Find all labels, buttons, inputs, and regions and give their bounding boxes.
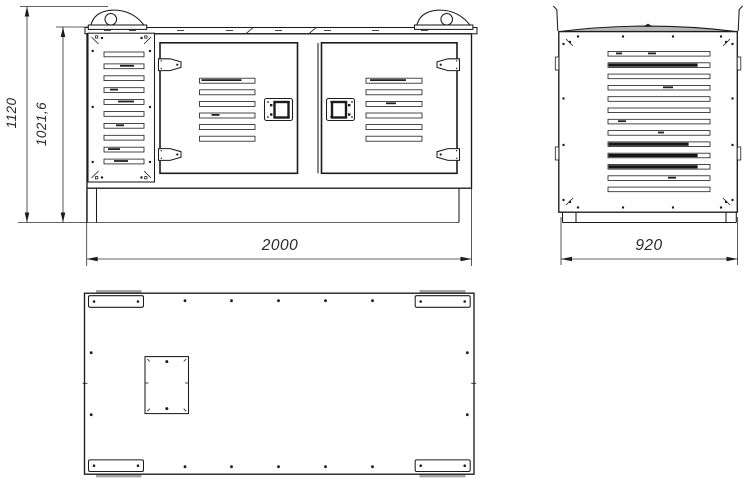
louver-slat-mark — [648, 53, 656, 55]
foot-plate — [415, 460, 470, 472]
door-left-handle — [265, 99, 293, 121]
dimension-label-width-front: 2000 — [261, 237, 298, 254]
lifting-eye-base — [88, 25, 146, 29]
screw-dot — [569, 41, 571, 43]
screw-dot — [720, 35, 722, 37]
screw-dot — [92, 161, 94, 163]
louver-slat-fill — [609, 64, 698, 67]
screw-dot — [90, 413, 93, 416]
foot-plate-hole — [463, 300, 466, 303]
dimension-label-height-body: 1021,6 — [34, 102, 49, 146]
screw-dot — [731, 199, 733, 201]
screw-dot — [184, 465, 187, 468]
louver-slat-mark — [114, 160, 128, 162]
foot-plate-hole — [463, 464, 466, 467]
screw-dot — [562, 97, 564, 99]
arrowhead — [87, 257, 98, 262]
screw-dot — [90, 351, 93, 354]
front-door-left — [159, 43, 298, 174]
lifting-eye-left — [88, 10, 146, 29]
arrowhead — [461, 257, 472, 262]
handle-screw — [267, 116, 269, 118]
screw-dot — [324, 299, 327, 302]
foot-plate-hole — [419, 464, 422, 467]
dimension-label-width-side: 920 — [635, 237, 662, 254]
louver-slat-mark — [668, 177, 676, 179]
screw-dot — [562, 144, 564, 146]
hinge-screw — [456, 68, 457, 69]
foot-plate — [89, 460, 144, 472]
louver-panel-outline — [88, 33, 155, 182]
door-right-handle — [327, 99, 355, 121]
screw-dot — [149, 50, 151, 52]
side-view: 920 — [553, 6, 742, 265]
foot-plate-hole — [419, 300, 422, 303]
lifting-eye-base — [415, 25, 473, 29]
foot-plate-hole — [137, 464, 140, 467]
screw-dot — [725, 41, 727, 43]
louver-slat-mark — [618, 120, 626, 122]
arrowhead — [25, 213, 30, 223]
roof-peak-mark — [643, 24, 653, 27]
screw-dot — [731, 97, 733, 99]
arrowhead — [727, 257, 738, 262]
screw-dot — [622, 35, 624, 37]
screw-dot — [371, 299, 374, 302]
screw-dot — [101, 37, 103, 39]
arrowhead — [61, 27, 66, 37]
side-tab — [737, 57, 741, 70]
screw-dot — [92, 50, 94, 52]
louver-slat-mark — [120, 65, 134, 67]
screw-dot — [622, 206, 624, 208]
handle-screw — [351, 116, 353, 118]
side-base — [563, 212, 737, 222]
base-plate-outline — [85, 293, 475, 474]
louver-slat-mark — [202, 79, 242, 81]
screw-dot — [466, 413, 469, 416]
handle-tab — [270, 104, 272, 106]
screw-dot — [140, 176, 142, 178]
handle-tab — [348, 104, 350, 106]
screw-dot — [569, 201, 571, 203]
screw-dot — [277, 299, 280, 302]
foot-plate-hole — [137, 300, 140, 303]
handle-tab — [348, 113, 350, 115]
arrowhead — [25, 7, 30, 17]
screw-dot — [466, 351, 469, 354]
hinge-screw — [456, 158, 457, 159]
screw-dot — [92, 106, 94, 108]
hinge-pin — [176, 153, 178, 155]
hinge-screw — [161, 60, 162, 61]
foot-plate-hole — [93, 300, 96, 303]
screw-dot — [672, 35, 674, 37]
hinge-screw — [161, 68, 162, 69]
hinge-screw — [161, 150, 162, 151]
screw-dot — [725, 201, 727, 203]
service-opening — [145, 357, 189, 414]
dimension-label-height-overall: 1120 — [4, 97, 19, 128]
front-louver-panel — [88, 33, 155, 182]
drawing-svg: 1120 1021,6 2000 — [0, 0, 744, 484]
hinge-screw — [456, 60, 457, 61]
louver-slat-fill — [609, 154, 698, 157]
front-door-right — [322, 43, 460, 174]
screw-dot — [720, 206, 722, 208]
hinge-pin — [176, 64, 178, 66]
louver-slat-mark — [110, 89, 118, 91]
screw-dot — [577, 35, 579, 37]
screw-dot — [731, 43, 733, 45]
foot-plate — [415, 296, 470, 308]
louver-slat-mark — [370, 79, 406, 81]
louver-slat-mark — [116, 124, 124, 126]
screw-dot — [277, 465, 280, 468]
screw-dot — [562, 199, 564, 201]
lifting-eye-edge-left — [557, 10, 558, 32]
side-dimension: 920 — [561, 217, 738, 265]
louver-slat-fill — [609, 165, 698, 168]
louver-slat-mark — [616, 53, 622, 55]
screw-dot — [149, 161, 151, 163]
opening-hole — [165, 360, 168, 363]
screw-dot — [731, 144, 733, 146]
side-tab — [737, 147, 741, 160]
front-view: 1120 1021,6 2000 — [4, 7, 477, 267]
handle-tab — [270, 113, 272, 115]
screw-dot — [562, 43, 564, 45]
foot-plate-hole — [93, 464, 96, 467]
screw-dot — [149, 106, 151, 108]
louver-slat-mark — [118, 101, 134, 103]
lifting-eye-edge-left-tip — [553, 6, 557, 10]
side-tab — [555, 147, 559, 160]
screw-dot — [230, 465, 233, 468]
louver-slat-mark — [386, 102, 396, 104]
handle-screw — [267, 101, 269, 103]
hinge-pin — [440, 64, 442, 66]
arrowhead — [61, 213, 66, 223]
side-panel-outline — [559, 32, 738, 213]
hinge-screw — [456, 150, 457, 151]
side-tab — [555, 57, 559, 70]
screw-dot — [577, 206, 579, 208]
hinge-pin — [440, 153, 442, 155]
screw-dot — [140, 37, 142, 39]
screw-dot — [672, 206, 674, 208]
louver-slat-fill — [609, 143, 689, 146]
drawing-page: 1120 1021,6 2000 — [0, 0, 744, 484]
arrowhead — [561, 257, 572, 262]
louver-slat-mark — [658, 132, 664, 134]
screw-dot — [101, 176, 103, 178]
lifting-eye-edge-right-tip — [739, 6, 742, 10]
hinge-screw — [161, 158, 162, 159]
foot-plate — [89, 296, 144, 308]
screw-dot — [324, 465, 327, 468]
opening-outline — [145, 357, 189, 414]
bottom-view — [83, 290, 477, 477]
opening-hole — [165, 407, 168, 410]
screw-dot — [184, 299, 187, 302]
louver-slat-mark — [108, 148, 120, 150]
screw-dot — [230, 299, 233, 302]
louver-slat-mark — [212, 114, 220, 116]
lifting-eye-right — [415, 10, 473, 29]
handle-screw — [351, 101, 353, 103]
screw-dot — [371, 465, 374, 468]
lifting-eye-edge-right — [738, 10, 739, 32]
louver-slat-mark — [663, 86, 673, 88]
